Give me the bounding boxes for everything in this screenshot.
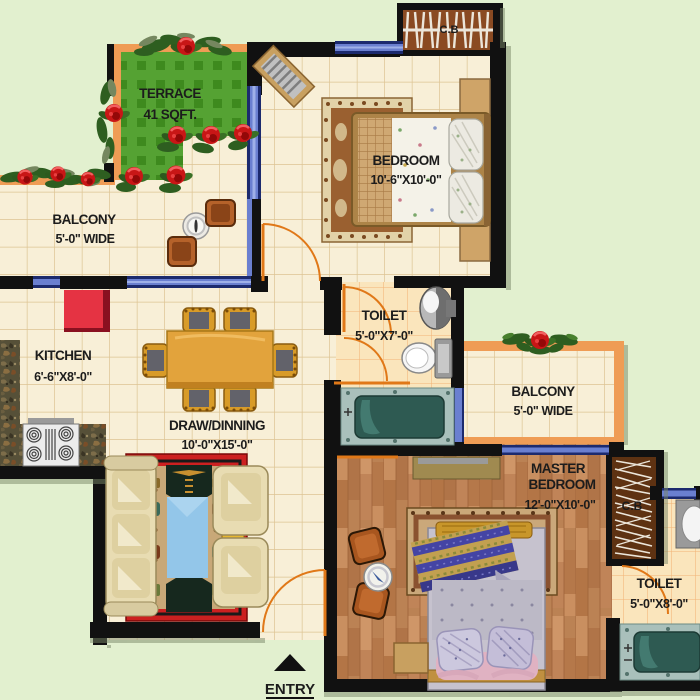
svg-text:5'-0" WIDE: 5'-0" WIDE: [513, 404, 572, 418]
svg-text:BALCONY: BALCONY: [511, 384, 575, 399]
svg-text:MASTER: MASTER: [531, 461, 586, 476]
svg-text:C.B: C.B: [440, 24, 459, 36]
svg-text:TOILET: TOILET: [362, 308, 408, 323]
svg-text:41 SQFT.: 41 SQFT.: [143, 107, 196, 122]
svg-text:KITCHEN: KITCHEN: [35, 348, 92, 363]
svg-text:5'-0" WIDE: 5'-0" WIDE: [55, 232, 114, 246]
svg-text:6'-6"X8'-0": 6'-6"X8'-0": [34, 370, 92, 384]
svg-text:DRAW/DINNING: DRAW/DINNING: [169, 418, 265, 433]
svg-text:BALCONY: BALCONY: [52, 212, 116, 227]
svg-text:10'-0"X15'-0": 10'-0"X15'-0": [182, 438, 253, 452]
svg-text:TERRACE: TERRACE: [139, 86, 201, 101]
svg-text:5'-0"X8'-0": 5'-0"X8'-0": [630, 597, 688, 611]
svg-text:BEDROOM: BEDROOM: [373, 153, 440, 168]
svg-text:10'-6"X10'-0": 10'-6"X10'-0": [371, 173, 442, 187]
svg-text:C.B: C.B: [622, 499, 643, 513]
svg-text:TOILET: TOILET: [637, 576, 683, 591]
svg-text:BEDROOM: BEDROOM: [529, 477, 596, 492]
svg-text:12'-0"X10'-0": 12'-0"X10'-0": [525, 498, 596, 512]
svg-text:5'-0"X7'-0": 5'-0"X7'-0": [355, 329, 413, 343]
svg-text:ENTRY: ENTRY: [265, 681, 315, 698]
